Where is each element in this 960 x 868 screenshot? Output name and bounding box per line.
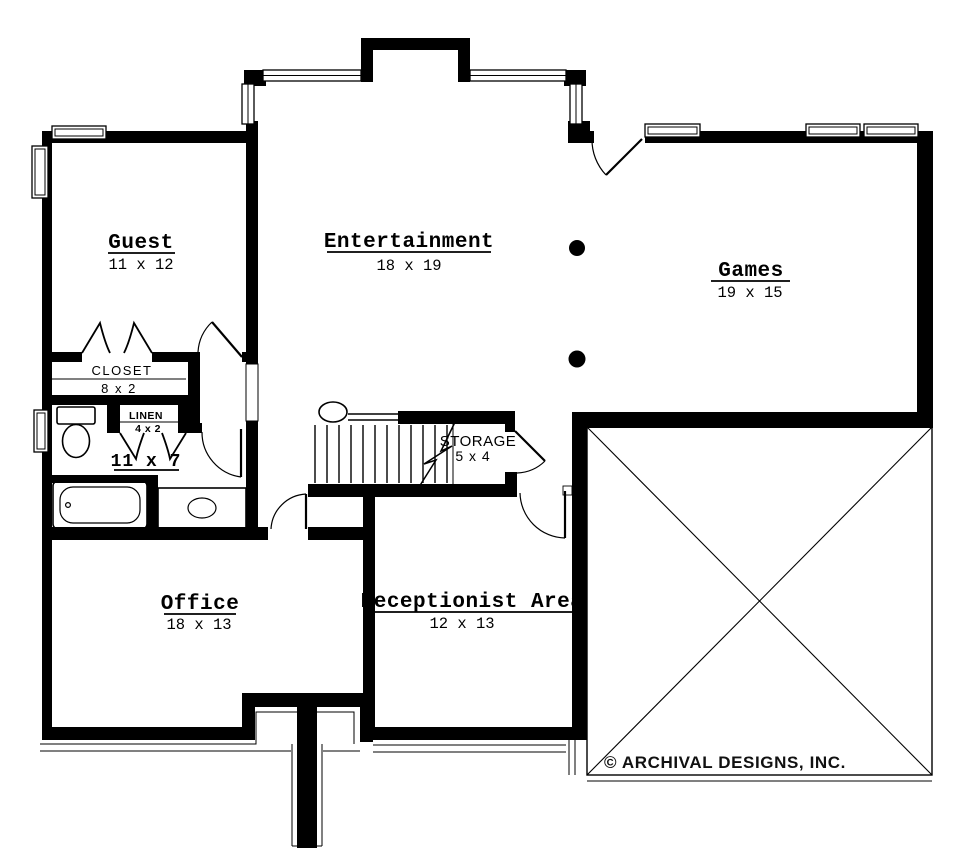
guest-label: Guest <box>108 232 174 255</box>
wall-garage-left <box>572 412 587 740</box>
wall-games-top-left <box>568 131 594 143</box>
linen-label: LINEN <box>129 410 163 422</box>
wall-storage-right-upper <box>505 411 515 432</box>
wall-linen-right <box>178 405 193 433</box>
column-dot-lower <box>569 351 586 368</box>
toilet-bowl <box>63 425 90 458</box>
wall-office-reception-divider <box>363 490 375 740</box>
wall-guest-divider-lower <box>246 421 258 540</box>
receptionist-label: Receptionist Area <box>361 591 584 614</box>
wall-guest-bottom-a <box>42 352 82 362</box>
bay-right-vertical-window <box>570 84 582 124</box>
wall-stairs-bottom <box>308 484 517 497</box>
toilet-tank <box>57 407 95 424</box>
office-label: Office <box>161 593 240 616</box>
reception-door <box>520 491 565 538</box>
storage-door <box>515 431 545 473</box>
linen-dims: 4 x 2 <box>135 423 161 435</box>
guest-dims: 11 x 12 <box>108 256 173 274</box>
structural-columns <box>569 240 586 368</box>
wall-office-top-right <box>308 527 363 540</box>
guest-top-window <box>52 126 106 139</box>
games-exterior-door <box>592 139 642 175</box>
column-dot-upper <box>569 240 585 256</box>
wall-bay-right-side <box>458 38 470 82</box>
hall-cased-opening <box>246 364 258 421</box>
bay-left-vertical-window <box>242 84 254 124</box>
games-label: Games <box>718 260 784 283</box>
wall-office-top-left <box>42 527 268 540</box>
wall-games-right <box>917 131 933 428</box>
office-door <box>271 494 306 529</box>
stair-newel-loop <box>319 402 347 422</box>
bay-right-strip-window <box>470 70 566 81</box>
entertainment-dims: 18 x 19 <box>376 257 441 275</box>
guest-room-door <box>198 322 242 357</box>
wall-stairs-top <box>398 411 515 424</box>
wall-chimney-stub <box>297 705 317 848</box>
doors <box>82 139 642 538</box>
floor-plan-drawing: Guest 11 x 12 Entertainment 18 x 19 Game… <box>0 0 960 868</box>
wall-linen-left <box>107 405 120 433</box>
wall-bump-top <box>242 693 373 707</box>
closet-label: CLOSET <box>91 363 152 378</box>
games-window-1 <box>645 124 700 137</box>
vanity-counter <box>158 488 246 528</box>
bay-left-strip-window <box>263 70 361 81</box>
floor-plan-page: Guest 11 x 12 Entertainment 18 x 19 Game… <box>0 0 960 868</box>
guest-left-window <box>32 146 48 198</box>
games-dims: 19 x 15 <box>717 284 782 302</box>
games-window-3 <box>864 124 918 137</box>
wall-games-bottom <box>575 412 933 428</box>
games-window-2 <box>806 124 860 137</box>
copyright-text: © ARCHIVAL DESIGNS, INC. <box>604 753 846 772</box>
closet-dims: 8 x 2 <box>101 381 137 396</box>
storage-dims: 5 x 4 <box>455 448 490 464</box>
cased-openings <box>246 364 572 495</box>
closet-bifold-doors <box>82 323 152 353</box>
wall-closet-bottom <box>42 395 193 405</box>
wall-bay-top <box>361 38 470 50</box>
office-dims: 18 x 13 <box>166 616 231 634</box>
entertainment-label: Entertainment <box>324 231 494 254</box>
bath-left-window <box>34 410 48 452</box>
garage-area <box>587 427 932 781</box>
receptionist-dims: 12 x 13 <box>429 615 494 633</box>
stair-break-line <box>419 418 457 487</box>
wall-bath-halfwall <box>42 475 150 483</box>
wall-office-bottom <box>42 727 255 740</box>
bath-dims: 11 x 7 <box>111 452 182 472</box>
wall-bath-door-stub <box>193 423 202 433</box>
wall-reception-bottom <box>373 727 587 740</box>
wall-guest-divider-upper <box>246 143 258 365</box>
bath-door <box>202 429 241 477</box>
